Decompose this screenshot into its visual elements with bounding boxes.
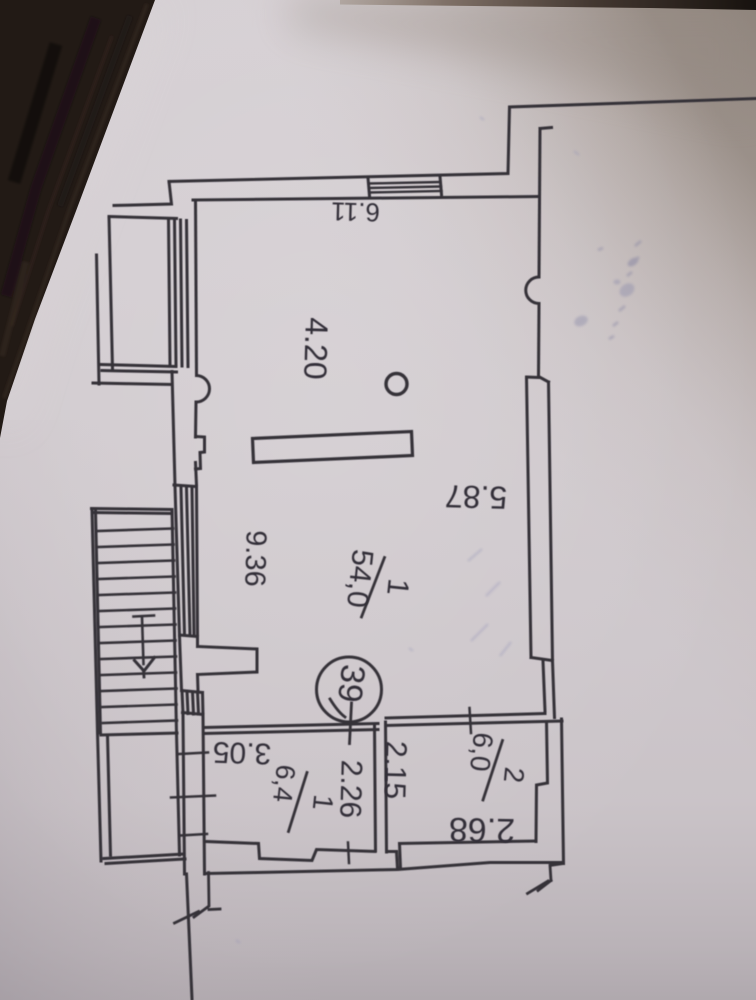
svg-text:6,4: 6,4 <box>267 763 301 803</box>
svg-text:1: 1 <box>307 793 339 812</box>
svg-text:1: 1 <box>380 577 415 597</box>
svg-text:2.68: 2.68 <box>449 810 516 849</box>
svg-text:54,0: 54,0 <box>340 548 379 610</box>
svg-text:39: 39 <box>330 662 372 704</box>
svg-text:2.15: 2.15 <box>378 740 413 799</box>
svg-text:3.05: 3.05 <box>212 735 272 770</box>
svg-text:5.87: 5.87 <box>444 478 507 516</box>
svg-text:4.20: 4.20 <box>297 317 335 380</box>
svg-text:6.11: 6.11 <box>331 196 380 227</box>
svg-text:6,0: 6,0 <box>464 731 499 773</box>
svg-text:9.36: 9.36 <box>238 530 271 587</box>
svg-text:2: 2 <box>498 766 530 785</box>
